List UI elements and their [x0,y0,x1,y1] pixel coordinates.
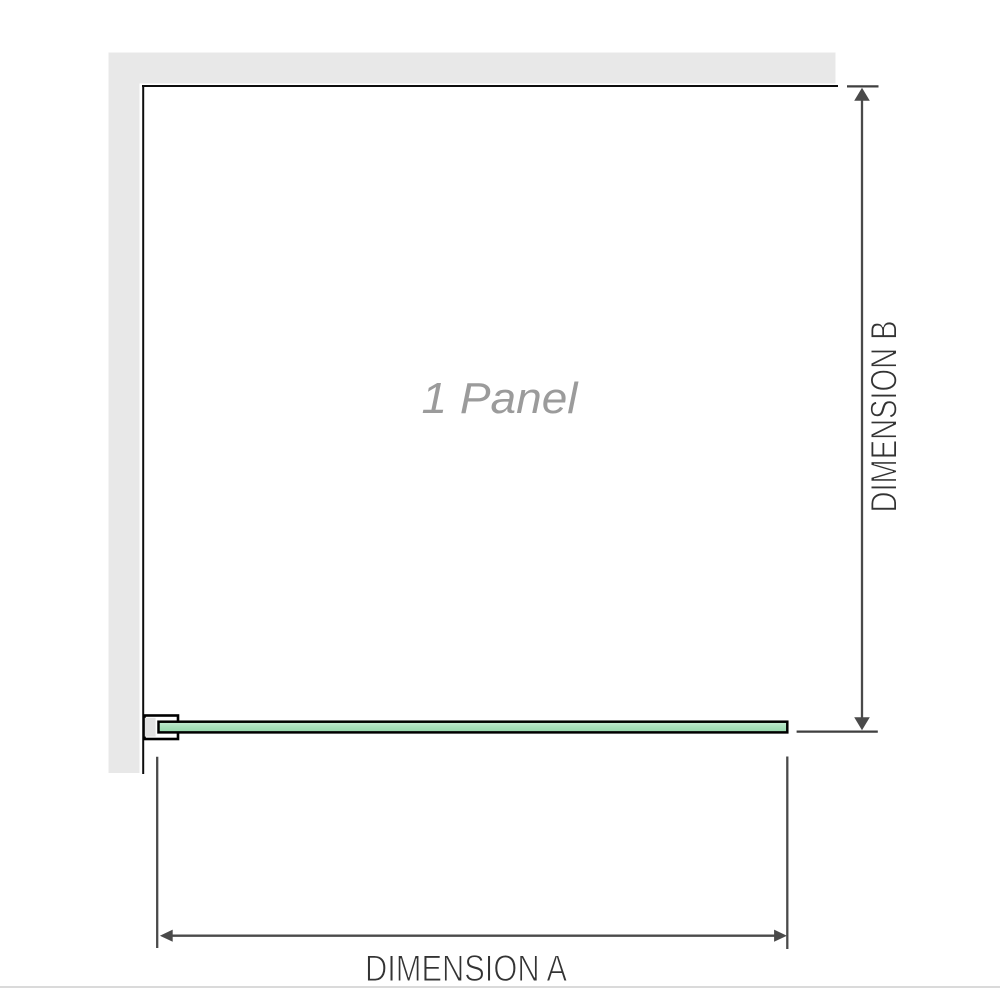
svg-text:DIMENSION A: DIMENSION A [365,948,567,989]
svg-text:1 Panel: 1 Panel [422,374,579,423]
svg-text:DIMENSION B: DIMENSION B [864,321,905,513]
